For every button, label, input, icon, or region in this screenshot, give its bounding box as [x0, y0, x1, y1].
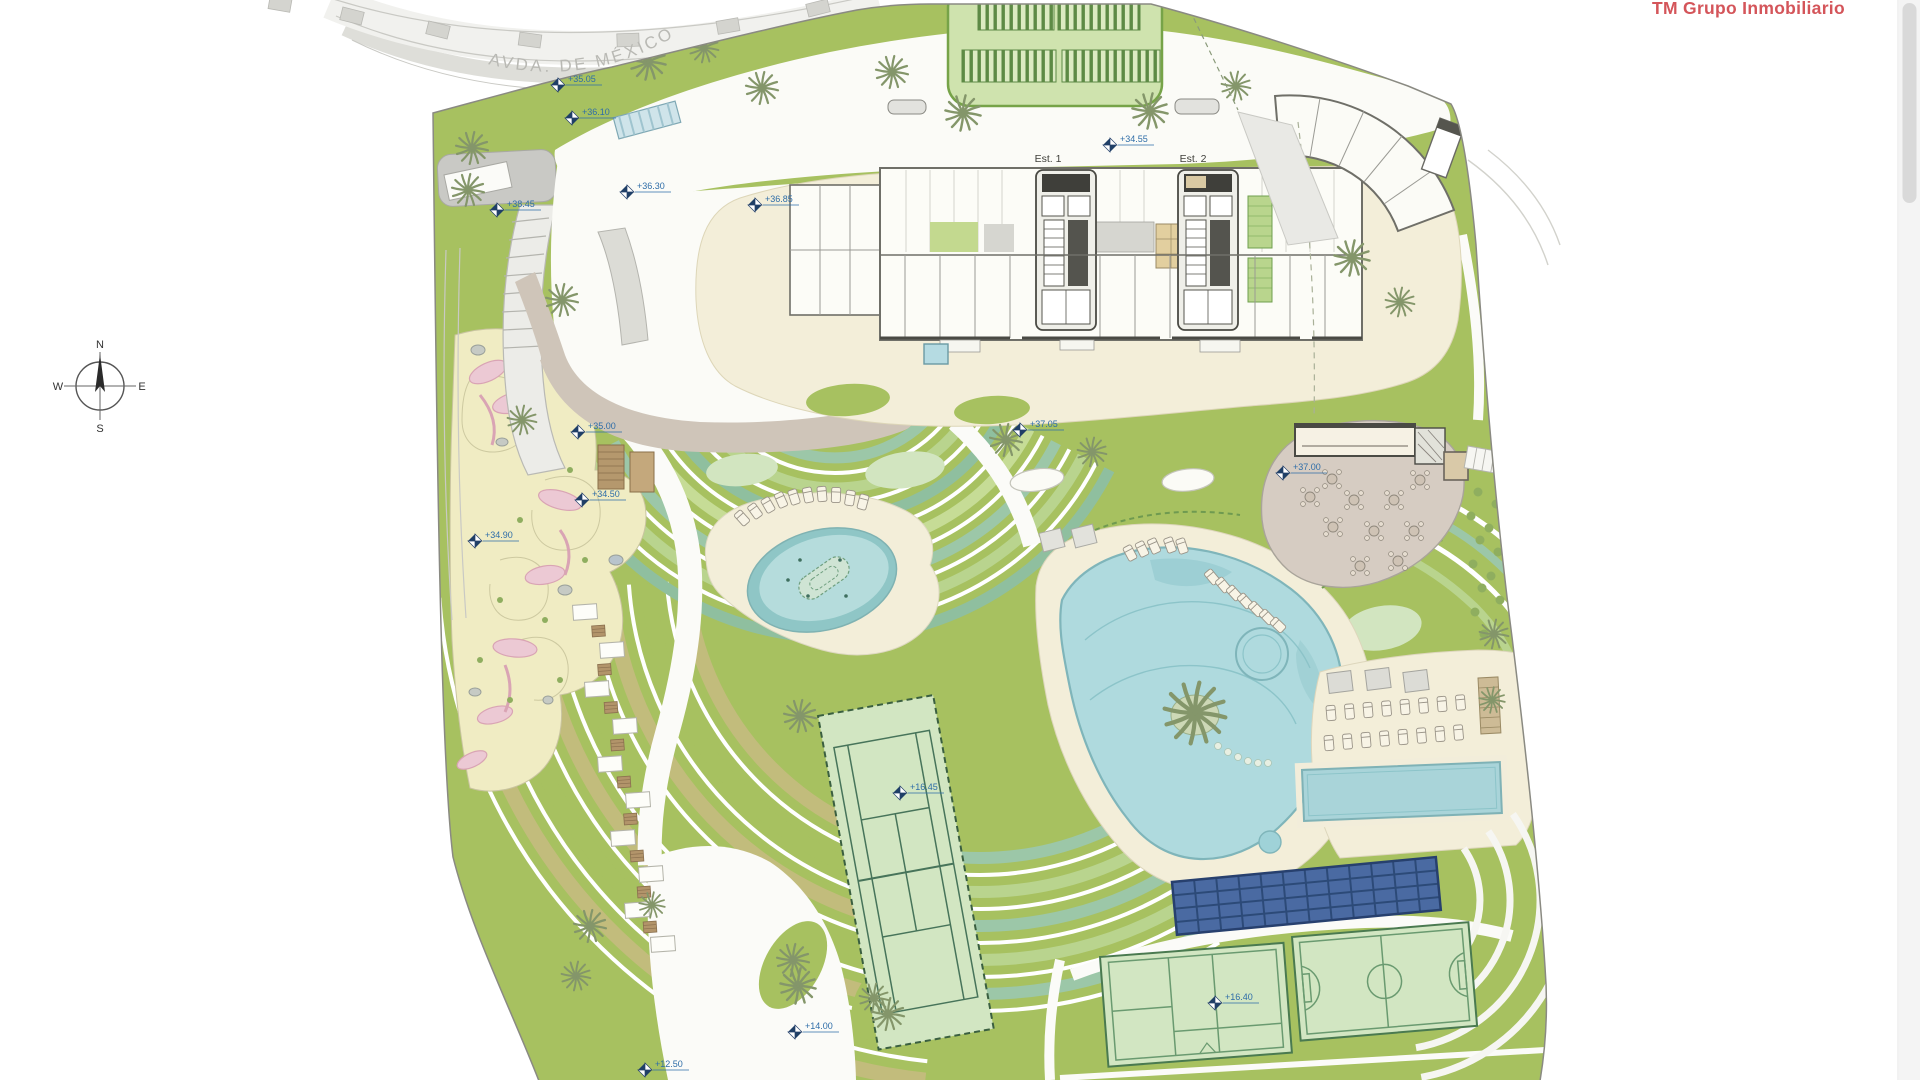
elevation-label: +34.90 [485, 530, 513, 540]
deck-spa [1259, 831, 1281, 853]
bench [888, 100, 926, 114]
elevation-label: +35.05 [568, 74, 596, 84]
shade-sail [1327, 671, 1353, 694]
site-interior [0, 0, 1920, 1080]
stair-core-2 [1178, 170, 1238, 330]
scrollbar-thumb[interactable] [1903, 3, 1917, 203]
elevation-label: +37.05 [1030, 419, 1058, 429]
bar-store [1415, 428, 1445, 464]
stair-core-1 [1036, 170, 1096, 330]
spa-circle [1236, 628, 1288, 680]
company-logo-text: TM Grupo Inmobiliario [1652, 0, 1845, 18]
stair2-label: Est. 2 [1180, 153, 1207, 165]
elevation-label: +14.00 [805, 1021, 833, 1031]
compass-rose: N S W E [53, 339, 146, 435]
elevation-label: +12.50 [655, 1059, 683, 1069]
futsal-court [1292, 922, 1477, 1040]
compass-south: S [96, 423, 103, 435]
planter [1248, 196, 1272, 248]
elevation-label: +36.85 [765, 194, 793, 204]
shade-sail [1365, 668, 1391, 691]
elevation-label: +16.45 [910, 782, 938, 792]
compass-west: W [53, 381, 64, 393]
timber-jetty [1478, 677, 1501, 734]
lap-pool [1298, 758, 1506, 825]
compass-north: N [96, 339, 104, 351]
paddle-court [1100, 943, 1292, 1067]
elevation-label: +35.00 [588, 421, 616, 431]
pergola-structure [948, 0, 1162, 106]
plunge-pool [924, 344, 948, 364]
elevation-label: +37.00 [1293, 462, 1321, 472]
elevation-label: +16.40 [1225, 992, 1253, 1002]
pool-bar [1295, 424, 1415, 456]
patio-garden [930, 222, 978, 252]
bench [1175, 99, 1219, 114]
planter [1248, 258, 1272, 302]
patio-paved [984, 224, 1014, 252]
plan-viewer-page: AVDA. DE MÉXICO [0, 0, 1920, 1080]
elevation-label: +34.50 [592, 489, 620, 499]
elevation-label: +38.45 [507, 199, 535, 209]
stair1-label: Est. 1 [1035, 153, 1062, 165]
elevation-label: +34.55 [1120, 134, 1148, 144]
elevation-label: +36.10 [582, 107, 610, 117]
shade-sail [1403, 670, 1429, 693]
sun-deck [1298, 650, 1538, 858]
elevation-label: +36.30 [637, 181, 665, 191]
compass-east: E [138, 381, 145, 393]
scrollbar[interactable] [1898, 0, 1920, 1080]
master-plan-drawing: AVDA. DE MÉXICO [0, 0, 1920, 1080]
